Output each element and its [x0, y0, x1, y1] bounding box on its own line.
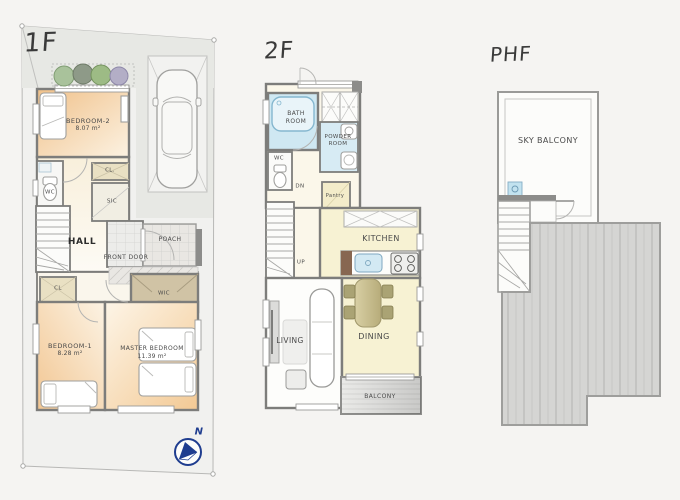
corner-wall-2f [352, 81, 362, 93]
stairs-1f [36, 206, 70, 272]
storage-cabinets-2f [322, 92, 358, 122]
title-1f: 1F [23, 27, 59, 58]
stairs-phf [498, 201, 530, 292]
floor-1f-drawing [20, 24, 216, 476]
label-wc-1f: WC [45, 189, 55, 196]
cabinet-bedroom2 [121, 96, 128, 122]
label-pantry: Pantry [326, 193, 344, 200]
floorplan-page: 1F 2F PHF BEDROOM-2 8.07 m² WC CL. SIC H… [0, 0, 680, 500]
porch-side-wall [196, 229, 202, 266]
wc-room-1f [37, 161, 63, 207]
label-stairs-down: DN [295, 183, 304, 190]
corridor-floor-2f [294, 208, 320, 278]
label-sky-balcony: SKY BALCONY [518, 136, 578, 146]
kitchen-cabinets [344, 211, 417, 227]
label-bedroom1: BEDROOM-1 8.28 m² [48, 342, 92, 358]
label-sic: SIC [107, 198, 117, 205]
label-front-door: FRONT DOOR [104, 254, 149, 262]
label-bedroom2: BEDROOM-2 8.07 m² [66, 117, 110, 133]
label-balcony: BALCONY [364, 393, 395, 401]
label-closet-upper: CL. [105, 167, 115, 174]
car-icon [153, 70, 201, 188]
floorplan-canvas [0, 0, 680, 500]
label-porch: POACH [159, 236, 182, 244]
label-closet-lower: CL [54, 285, 62, 292]
compass-icon [175, 439, 201, 465]
label-kitchen: KITCHEN [362, 234, 399, 244]
stove-icon [391, 253, 418, 274]
stairs-2f [266, 202, 294, 278]
outdoor-sink-icon [508, 182, 522, 196]
kitchen-counter [341, 251, 419, 275]
label-powder-room: POWDER ROOM [324, 134, 351, 148]
sink-icon [355, 254, 382, 272]
label-bathroom: BATH ROOM [286, 110, 306, 126]
label-hall: HALL [68, 237, 96, 249]
label-wc-2f: WC [274, 155, 284, 162]
phf-wall-bar [498, 195, 556, 201]
label-living: LIVING [276, 336, 304, 346]
label-dining: DINING [358, 332, 389, 342]
tv-board-icon [270, 301, 279, 363]
label-compass-north: N [195, 426, 204, 439]
title-phf: PHF [489, 41, 532, 66]
label-stairs-up: UP [297, 259, 305, 266]
title-2f: 2F [263, 37, 295, 64]
bed-icon-bedroom1 [41, 381, 97, 407]
label-master-bedroom: MASTER BEDROOM 11.39 m² [120, 345, 184, 361]
bed-icon-bedroom2 [40, 93, 66, 139]
label-wic: WIC [158, 290, 170, 297]
phf-stair-hall [530, 201, 556, 222]
